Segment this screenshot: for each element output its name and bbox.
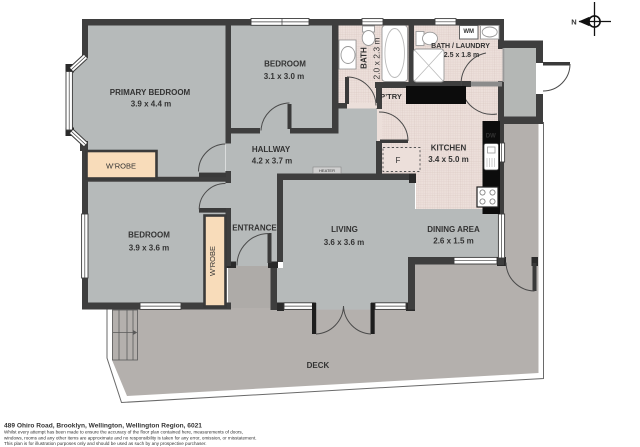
svg-text:LIVING: LIVING (331, 225, 358, 234)
svg-text:3.9 x 4.4 m: 3.9 x 4.4 m (131, 100, 171, 109)
svg-text:F: F (396, 156, 401, 165)
svg-text:N: N (571, 18, 576, 27)
svg-text:W’ROBE: W’ROBE (208, 246, 217, 276)
svg-text:HEATER: HEATER (319, 168, 335, 173)
svg-text:W’ROBE: W’ROBE (106, 162, 136, 171)
svg-text:DINING AREA: DINING AREA (427, 225, 480, 234)
svg-text:BATH: BATH (360, 47, 369, 69)
svg-text:DECK: DECK (307, 361, 330, 370)
svg-text:3.6 x 3.6 m: 3.6 x 3.6 m (324, 238, 364, 247)
svg-text:2.6 x 1.5 m: 2.6 x 1.5 m (433, 237, 473, 246)
svg-text:BATH / LAUNDRY: BATH / LAUNDRY (431, 43, 490, 50)
svg-text:3.9 x 3.6 m: 3.9 x 3.6 m (129, 244, 169, 253)
svg-text:3.4 x 5.0 m: 3.4 x 5.0 m (428, 155, 468, 164)
svg-text:4.2 x 3.7 m: 4.2 x 3.7 m (252, 157, 292, 166)
svg-text:BEDROOM: BEDROOM (264, 60, 306, 69)
svg-text:ENTRANCE: ENTRANCE (232, 224, 277, 233)
svg-text:This plan is for illustration: This plan is for illustration purposes o… (4, 441, 207, 446)
svg-text:3.1 x 3.0 m: 3.1 x 3.0 m (264, 72, 304, 81)
svg-text:489 Ohiro Road, Brooklyn, Well: 489 Ohiro Road, Brooklyn, Wellington, We… (4, 423, 202, 430)
svg-text:windows, rooms and any other i: windows, rooms and any other items are a… (4, 436, 257, 441)
svg-text:Whilst every attempt has been: Whilst every attempt has been made to en… (4, 430, 243, 435)
svg-text:PRIMARY BEDROOM: PRIMARY BEDROOM (110, 88, 191, 97)
svg-text:2.0 x 2.3 m: 2.0 x 2.3 m (372, 37, 382, 79)
svg-text:KITCHEN: KITCHEN (431, 144, 467, 153)
svg-text:2.5 x 1.8 m: 2.5 x 1.8 m (444, 52, 479, 59)
svg-text:WM: WM (463, 29, 474, 35)
svg-text:P’TRY: P’TRY (380, 92, 402, 101)
svg-text:HALLWAY: HALLWAY (252, 145, 291, 154)
svg-text:BEDROOM: BEDROOM (128, 231, 170, 240)
svg-text:DW: DW (486, 134, 496, 140)
